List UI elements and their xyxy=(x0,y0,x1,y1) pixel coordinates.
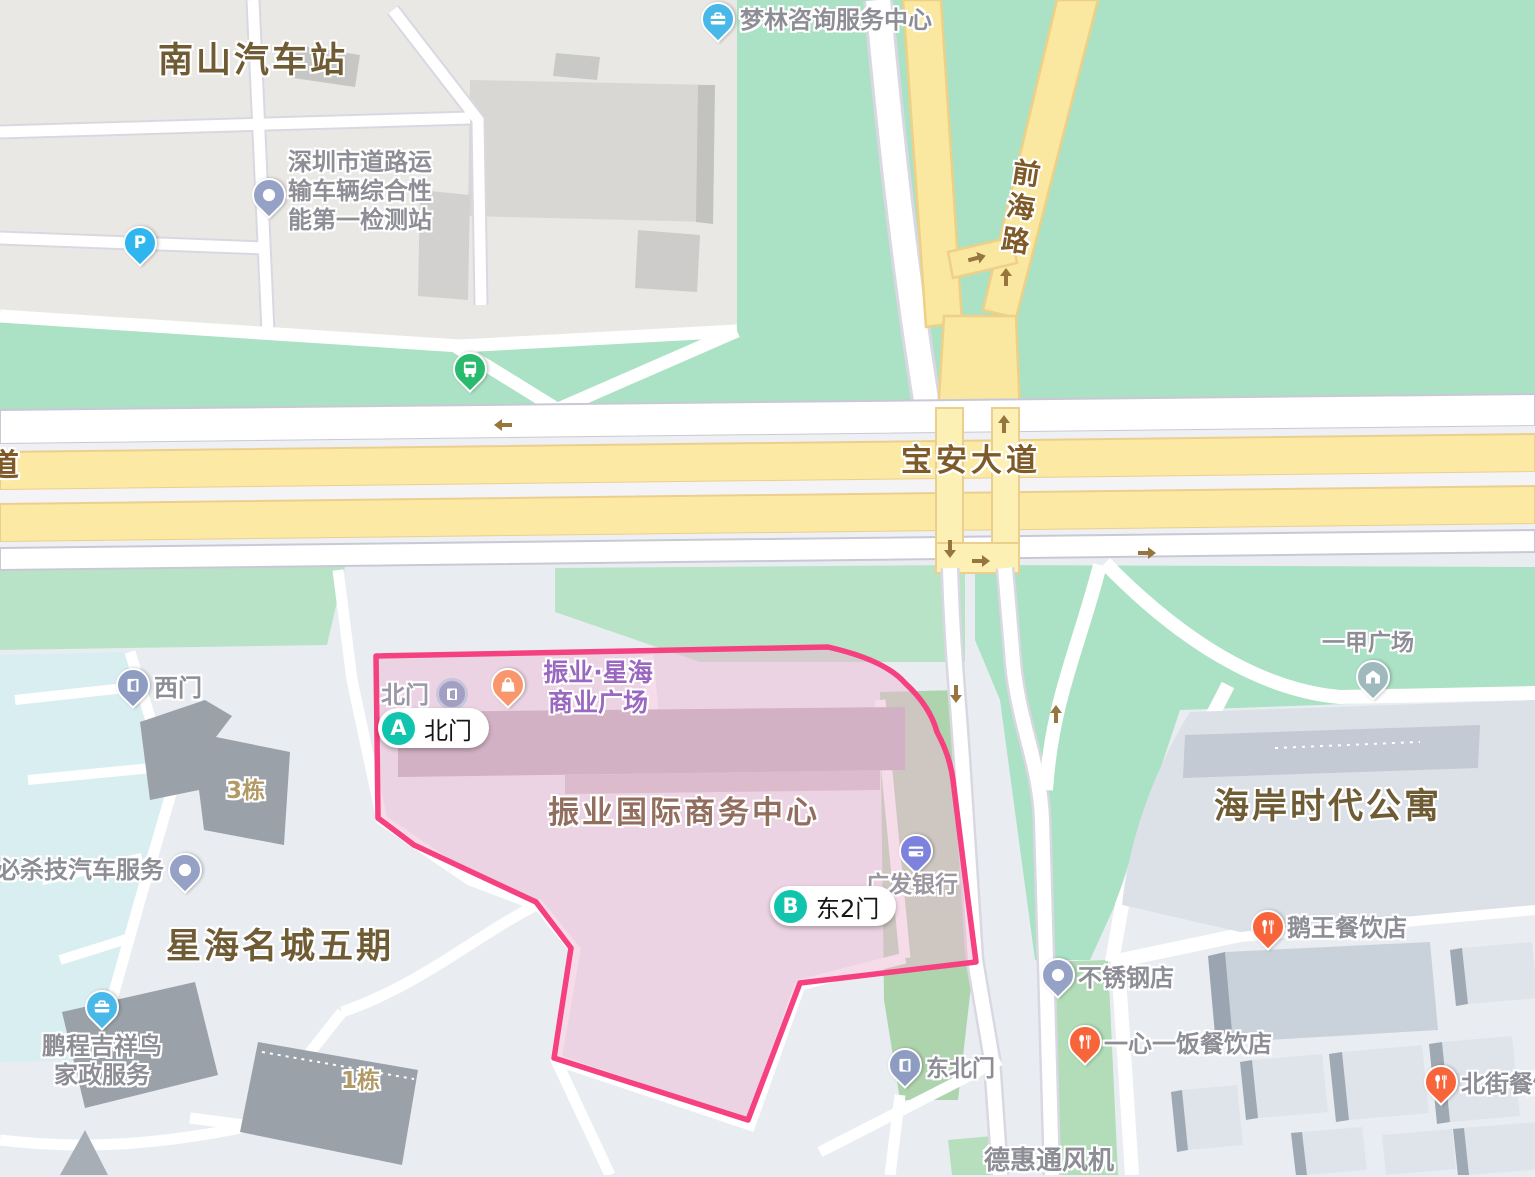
poi-pengcheng-line2: 家政服务 xyxy=(34,1061,170,1090)
gate-northeast-label: 东北门 xyxy=(926,1056,995,1084)
area-label-haian: 海岸时代公寓 xyxy=(1214,786,1442,828)
poi-dehui-label: 德惠通风机 xyxy=(984,1146,1114,1177)
area-label-xinghai: 星海名城五期 xyxy=(166,926,394,968)
route-marker-b-label: 东2门 xyxy=(816,889,879,924)
route-marker-a[interactable]: A 北门 xyxy=(378,708,489,748)
area-label-nanshan: 南山汽车站 xyxy=(158,40,348,82)
poi-pengcheng-line1: 鹏程吉祥鸟 xyxy=(34,1032,170,1061)
route-marker-b[interactable]: B 东2门 xyxy=(770,886,896,926)
route-marker-b-letter: B xyxy=(774,890,807,923)
door-circle-icon[interactable] xyxy=(436,678,468,710)
baoan-avenue xyxy=(0,394,1535,573)
building-label-1: 1栋 xyxy=(341,1068,380,1096)
building-label-3: 3栋 xyxy=(226,778,265,806)
poi-menglin-label: 梦林咨询服务中心 xyxy=(740,6,932,35)
route-marker-a-letter: A xyxy=(382,712,415,745)
poi-yixinyifan-label: 一心一饭餐饮店 xyxy=(1104,1030,1272,1059)
poi-ewang-label: 鹅王餐饮店 xyxy=(1287,914,1407,943)
poi-jiance-line1: 深圳市道路运 xyxy=(288,148,432,177)
poi-yijia-label: 一甲广场 xyxy=(1322,630,1414,658)
map-base-layer xyxy=(0,0,1535,1175)
poi-beijie-label: 北街餐饮店 xyxy=(1461,1070,1535,1099)
poi-jiance-line2: 输车辆综合性 xyxy=(288,177,432,206)
road-label-baoan: 宝安大道 xyxy=(901,443,1041,480)
poi-jiance-line3: 能第一检测站 xyxy=(288,206,432,235)
map-canvas[interactable]: 南山汽车站 星海名城五期 海岸时代公寓 宝安大道 前海路 道 3栋 1栋 振业国… xyxy=(0,0,1535,1175)
highlight-area-title: 振业国际商务中心 xyxy=(548,795,820,832)
road-label-partial: 道 xyxy=(0,448,19,485)
poi-buxiugang-label: 不锈钢店 xyxy=(1078,964,1174,993)
parking-pin-glyph: P xyxy=(125,228,155,258)
gate-north-label: 北门 xyxy=(381,681,429,710)
poi-zhenye-plaza-line1: 振业·星海 xyxy=(527,658,669,688)
gate-west-label: 西门 xyxy=(154,674,202,703)
map-page: { "highlight_area": { "name": "振业国际商务中心"… xyxy=(0,0,1535,1175)
poi-zhenye-plaza-line2: 商业广场 xyxy=(527,688,669,718)
route-marker-a-label: 北门 xyxy=(424,711,472,746)
poi-bishaji-label: 必杀技汽车服务 xyxy=(0,856,164,885)
